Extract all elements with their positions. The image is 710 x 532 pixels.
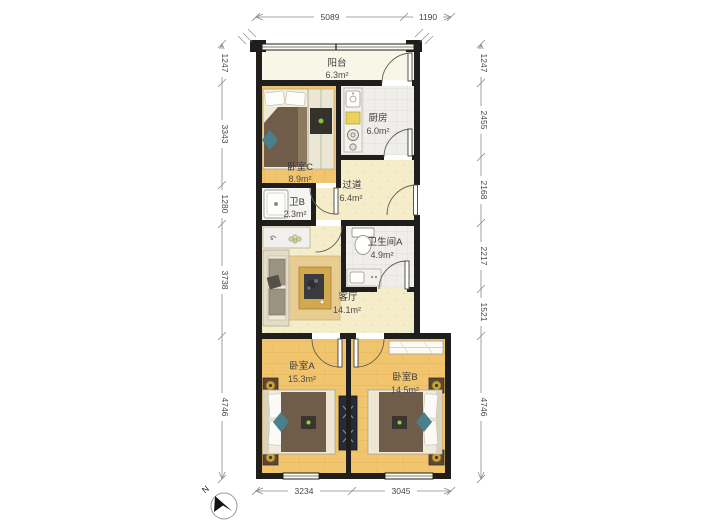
kitchen-furniture — [344, 88, 362, 152]
pillow — [285, 91, 305, 106]
dim-left-2: 3343 — [220, 125, 230, 144]
living-area: 14.1m² — [333, 305, 361, 315]
dim-top-2: 1190 — [419, 12, 438, 22]
bedroom-c-name: 卧室C — [287, 161, 313, 173]
corner-hatch — [238, 29, 433, 44]
cup — [320, 300, 324, 304]
compass: N — [200, 483, 237, 519]
bath-a-name: 卫生间A — [368, 236, 404, 248]
floor-plan-drawing: 阳台 6.3m² 厨房 6.0m² 卧室C 8.9m² 过道 6.4m² 卫B … — [0, 0, 710, 532]
appliance — [346, 112, 360, 124]
dim-bottom-2: 3045 — [392, 486, 411, 496]
basin — [350, 272, 364, 283]
bedroom-b-window — [385, 473, 433, 479]
dim-left-4: 3738 — [220, 271, 230, 290]
dim-top-1: 5089 — [321, 12, 340, 22]
dim-bottom-1: 3234 — [295, 486, 314, 496]
hallway-name: 过道 — [342, 179, 362, 191]
bedroom-a-name: 卧室A — [289, 360, 315, 372]
bedroom-c-furniture — [262, 89, 334, 169]
compass-north-label: N — [200, 483, 211, 495]
floor-plan-page: 阳台 6.3m² 厨房 6.0m² 卧室C 8.9m² 过道 6.4m² 卫B … — [0, 0, 710, 532]
bedroom-c-area: 8.9m² — [288, 174, 311, 184]
kitchen-area: 6.0m² — [366, 126, 389, 136]
hallway-area: 6.4m² — [339, 193, 362, 203]
dim-right-6: 4746 — [479, 398, 489, 417]
bedroom-a-area: 15.3m² — [288, 374, 316, 384]
dim-right-1: 1247 — [479, 54, 489, 73]
dim-left-5: 4746 — [220, 398, 230, 417]
living-name: 客厅 — [338, 291, 358, 303]
dim-right-3: 2168 — [479, 181, 489, 200]
living-furniture — [263, 250, 340, 326]
dim-right-2: 2455 — [479, 111, 489, 130]
balcony-area: 6.3m² — [325, 70, 348, 80]
balcony-name: 阳台 — [327, 57, 346, 69]
dim-right-4: 2217 — [479, 247, 489, 266]
dim-left-3: 1280 — [220, 195, 230, 214]
sofa-cushion — [269, 289, 285, 315]
bedroom-b-name: 卧室B — [392, 371, 417, 383]
bath-a-area: 4.9m² — [370, 250, 393, 260]
bath-b-area: 2.3m² — [283, 209, 306, 219]
balcony-window — [262, 44, 414, 50]
bath-b-name: 卫B — [289, 197, 305, 208]
vanity-furniture — [263, 227, 310, 248]
dim-right-5: 1521 — [479, 303, 489, 322]
bedroom-b-area: 14.5m² — [391, 385, 419, 395]
stove-burner — [348, 130, 359, 141]
dim-left-1: 1247 — [220, 54, 230, 73]
pillow — [264, 91, 284, 106]
pot — [350, 144, 356, 150]
bedroom-a-window — [283, 473, 319, 479]
kitchen-name: 厨房 — [368, 112, 387, 124]
